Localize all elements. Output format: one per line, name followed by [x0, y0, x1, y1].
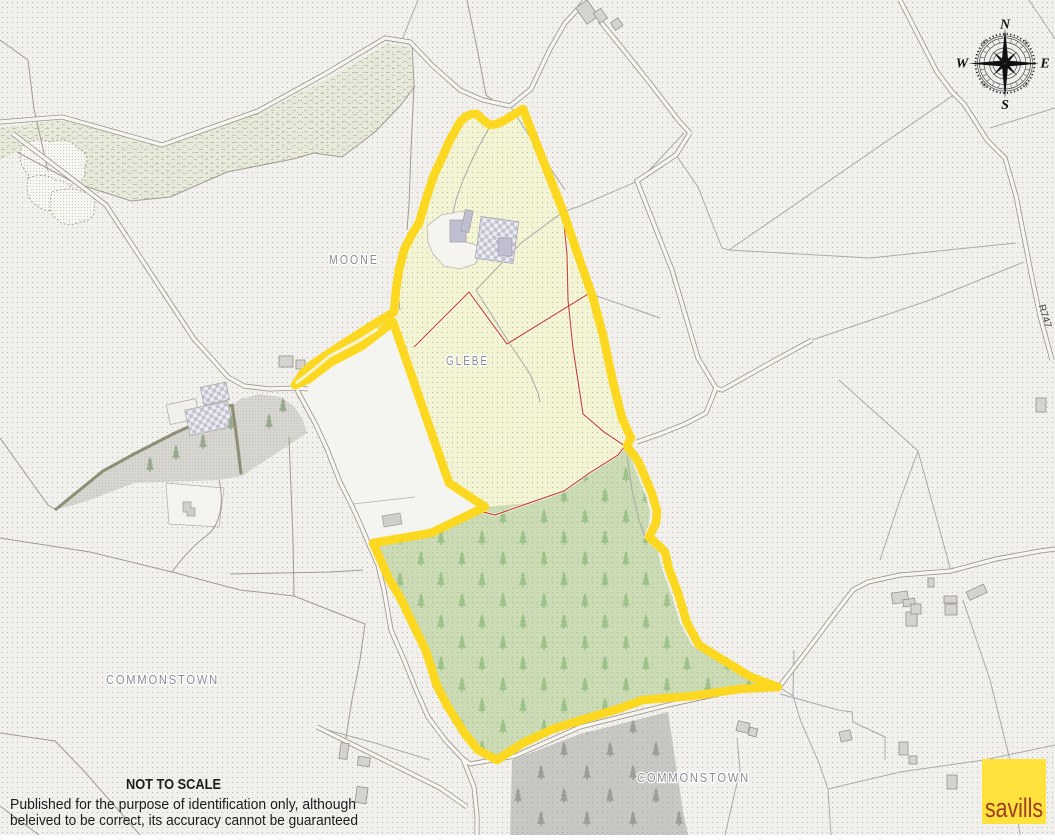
- svg-text:S: S: [1001, 98, 1009, 113]
- svg-text:Published for the purpose of i: Published for the purpose of identificat…: [10, 796, 356, 813]
- svg-text:E: E: [1039, 57, 1049, 72]
- svg-text:NOT TO SCALE: NOT TO SCALE: [126, 776, 221, 793]
- svg-text:GLEBE: GLEBE: [446, 353, 489, 368]
- svg-text:savills: savills: [985, 793, 1043, 823]
- svg-text:COMMONSTOWN: COMMONSTOWN: [106, 673, 219, 687]
- svg-text:MOONE: MOONE: [329, 252, 379, 267]
- svg-text:COMMONSTOWN: COMMONSTOWN: [637, 771, 750, 785]
- svg-text:N: N: [999, 18, 1011, 33]
- svg-text:beleived to be correct, its ac: beleived to be correct, its accuracy can…: [10, 812, 358, 829]
- svg-text:W: W: [956, 57, 970, 72]
